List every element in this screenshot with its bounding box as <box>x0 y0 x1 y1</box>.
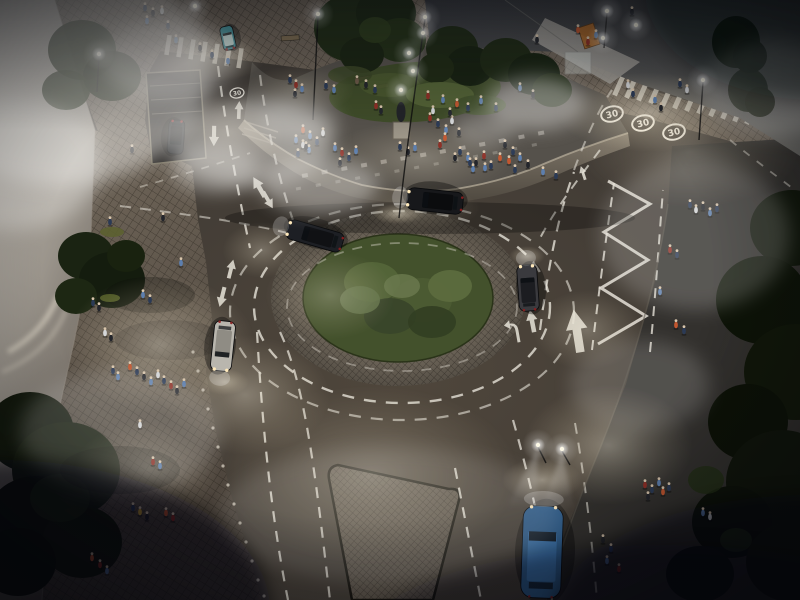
roundabout-night-scene: Night aerial rendering of an urban round… <box>0 0 800 600</box>
shading <box>0 0 800 600</box>
vignette <box>0 0 800 600</box>
rendering-canvas: Night aerial rendering of an urban round… <box>0 0 800 600</box>
